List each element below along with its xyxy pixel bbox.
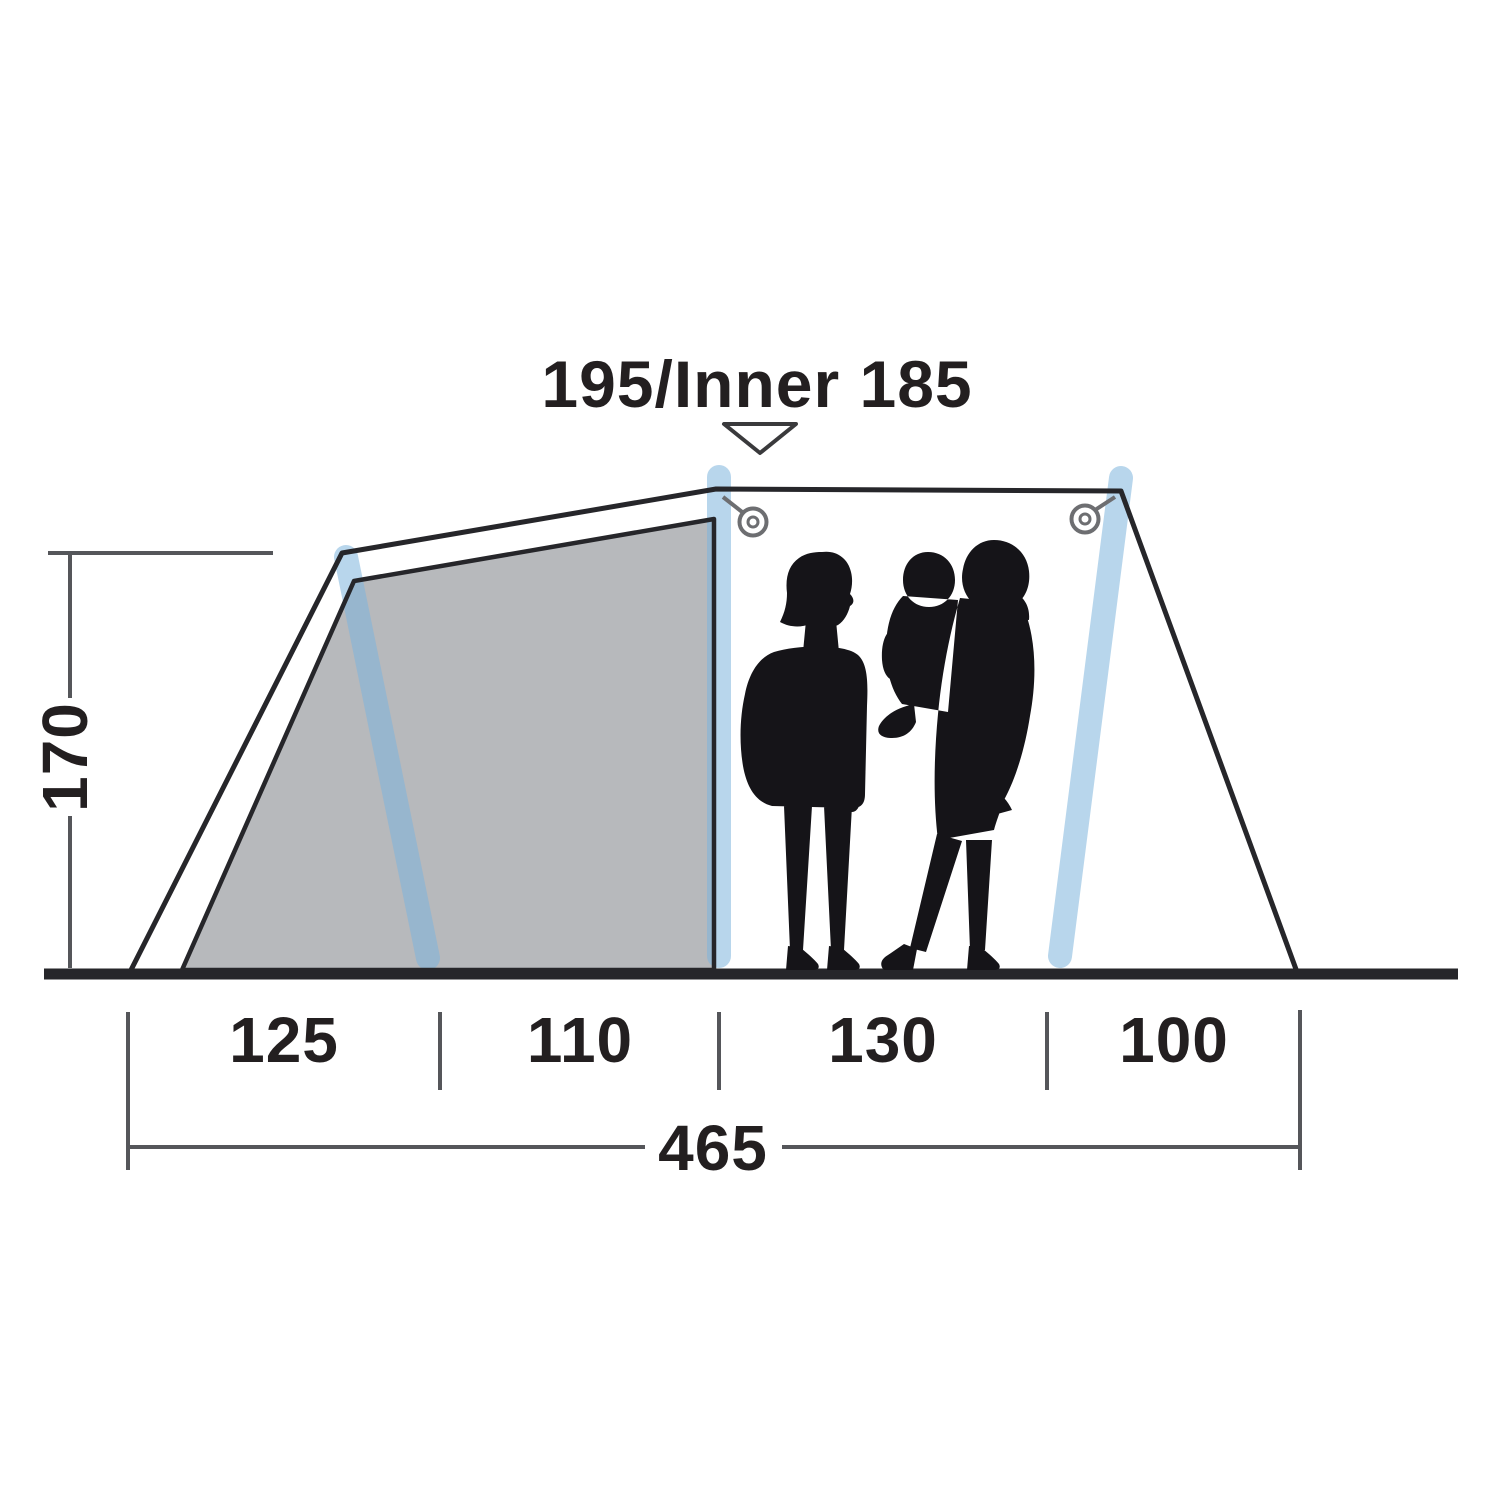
segment-label-4: 100 — [1119, 1004, 1229, 1076]
tent-dimension-diagram: 195/Inner 185 170 125 110 130 100 465 — [0, 0, 1500, 1500]
side-height-label: 170 — [29, 702, 101, 812]
scale-figures — [741, 540, 1035, 970]
total-width-label: 465 — [658, 1112, 768, 1184]
segment-label-2: 110 — [527, 1004, 633, 1076]
segment-label-3: 130 — [828, 1004, 938, 1076]
peak-height-label: 195/Inner 185 — [541, 347, 972, 421]
segment-label-1: 125 — [229, 1004, 339, 1076]
adult-with-child-silhouette — [878, 540, 1034, 970]
peak-arrow-icon — [724, 424, 796, 453]
inner-tent-panel-fill — [182, 519, 714, 970]
adult-silhouette — [741, 552, 868, 970]
inner-tent-panel — [182, 519, 714, 970]
guy-rings — [723, 497, 1115, 536]
air-pole-right — [1060, 478, 1121, 956]
